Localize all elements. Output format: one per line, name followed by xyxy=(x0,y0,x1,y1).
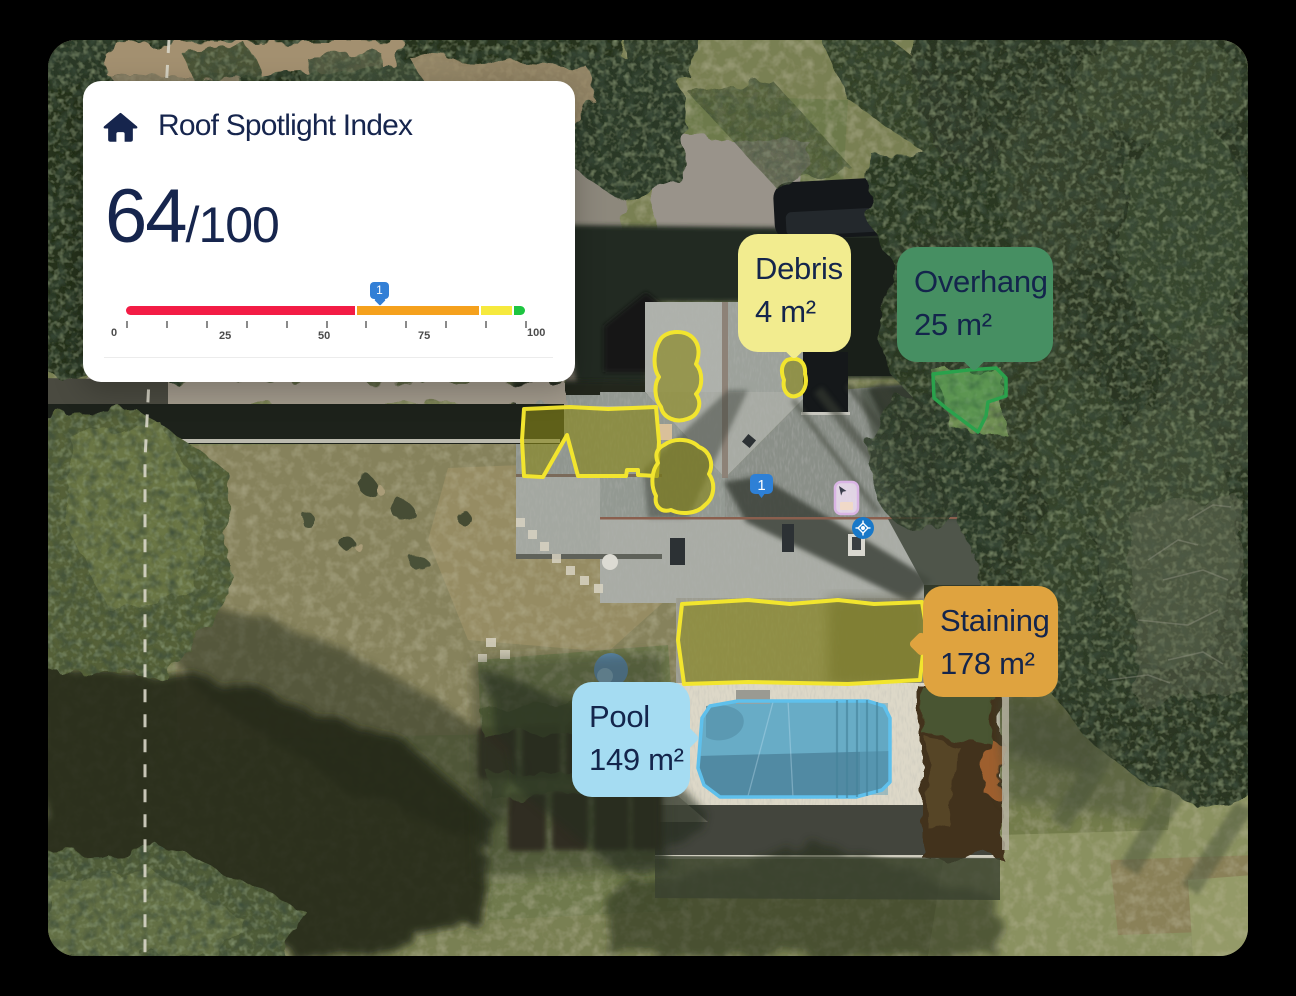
svg-text:1: 1 xyxy=(757,477,765,494)
